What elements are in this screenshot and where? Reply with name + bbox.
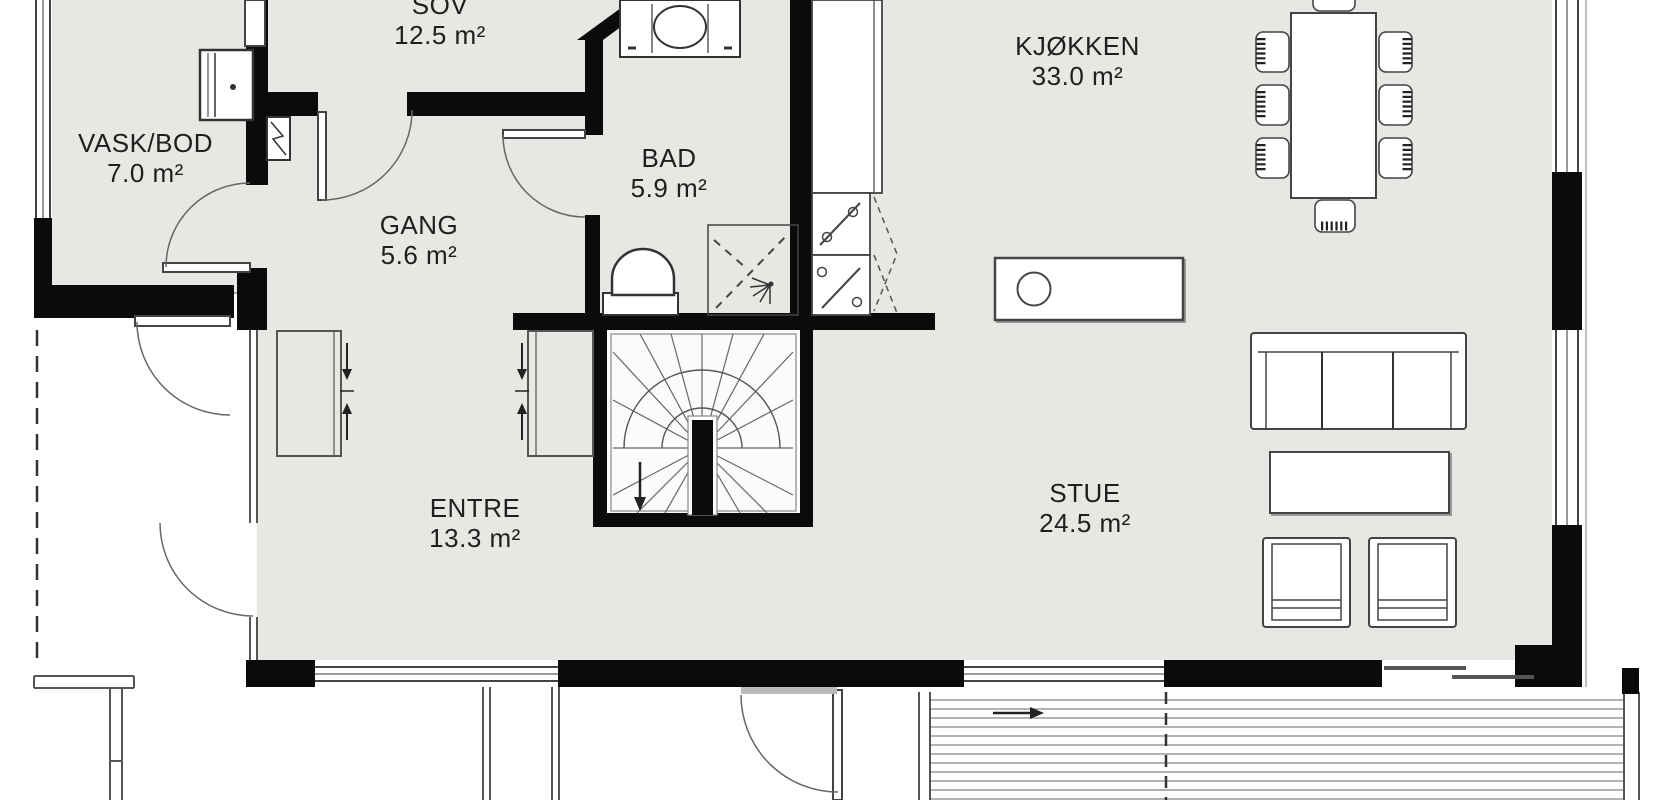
room-name: BAD (594, 143, 744, 173)
dining-table-icon (1291, 13, 1376, 198)
window-bottom-left (315, 663, 558, 685)
electrical-cabinet-icon (267, 117, 290, 160)
door-sov-leaf[interactable] (318, 112, 326, 200)
kitchen-tall-cabinet-icon (812, 0, 882, 193)
room-label-entre: ENTRE 13.3 m² (400, 493, 550, 553)
room-area: 5.9 m² (594, 173, 744, 203)
room-area: 5.6 m² (344, 240, 494, 270)
room-name: KJØKKEN (995, 31, 1160, 61)
terrace-deck-icon (919, 668, 1639, 800)
room-label-gang: GANG 5.6 m² (344, 210, 494, 270)
room-name: ENTRE (400, 493, 550, 523)
room-name: STUE (1010, 478, 1160, 508)
coffee-table-icon (1270, 452, 1451, 515)
window-left (34, 0, 52, 218)
floor-plan-drawing (0, 0, 1670, 800)
room-area: 33.0 m² (995, 61, 1160, 91)
room-name: VASK/BOD (68, 128, 223, 158)
room-area: 12.5 m² (365, 20, 515, 50)
room-name: SOV (365, 0, 515, 20)
room-name: GANG (344, 210, 494, 240)
room-label-kjokken: KJØKKEN 33.0 m² (995, 31, 1160, 91)
door-entrance-arc (160, 523, 253, 616)
room-label-stue: STUE 24.5 m² (1010, 478, 1160, 538)
room-area: 13.3 m² (400, 523, 550, 553)
room-label-vaskbod: VASK/BOD 7.0 m² (68, 128, 223, 188)
window-right-top (1552, 0, 1582, 172)
washing-machine-icon (200, 50, 253, 120)
oven-icon (812, 193, 870, 255)
vanity-sink-icon (620, 0, 740, 57)
room-area: 7.0 m² (68, 158, 223, 188)
dishwasher-icon (812, 255, 870, 315)
door-vaskbod-exterior-leaf[interactable] (135, 316, 230, 326)
kitchen-island-sink-icon (995, 258, 1185, 322)
room-label-sov: SOV 12.5 m² (365, 0, 515, 50)
window-bottom-middle (964, 663, 1164, 685)
door-bad-leaf[interactable] (503, 130, 585, 138)
door-garden-leaf[interactable] (833, 690, 842, 800)
sofa-icon (1251, 333, 1466, 429)
window-right-middle (1552, 330, 1582, 525)
floor-plan: SOV 12.5 m² VASK/BOD 7.0 m² BAD 5.9 m² G… (0, 0, 1670, 800)
room-area: 24.5 m² (1010, 508, 1160, 538)
door-top-leaf[interactable] (245, 0, 265, 46)
room-label-bad: BAD 5.9 m² (594, 143, 744, 203)
sliding-door[interactable] (1382, 660, 1534, 687)
door-vaskbod-leaf[interactable] (163, 263, 250, 272)
deck-post (1622, 668, 1639, 694)
